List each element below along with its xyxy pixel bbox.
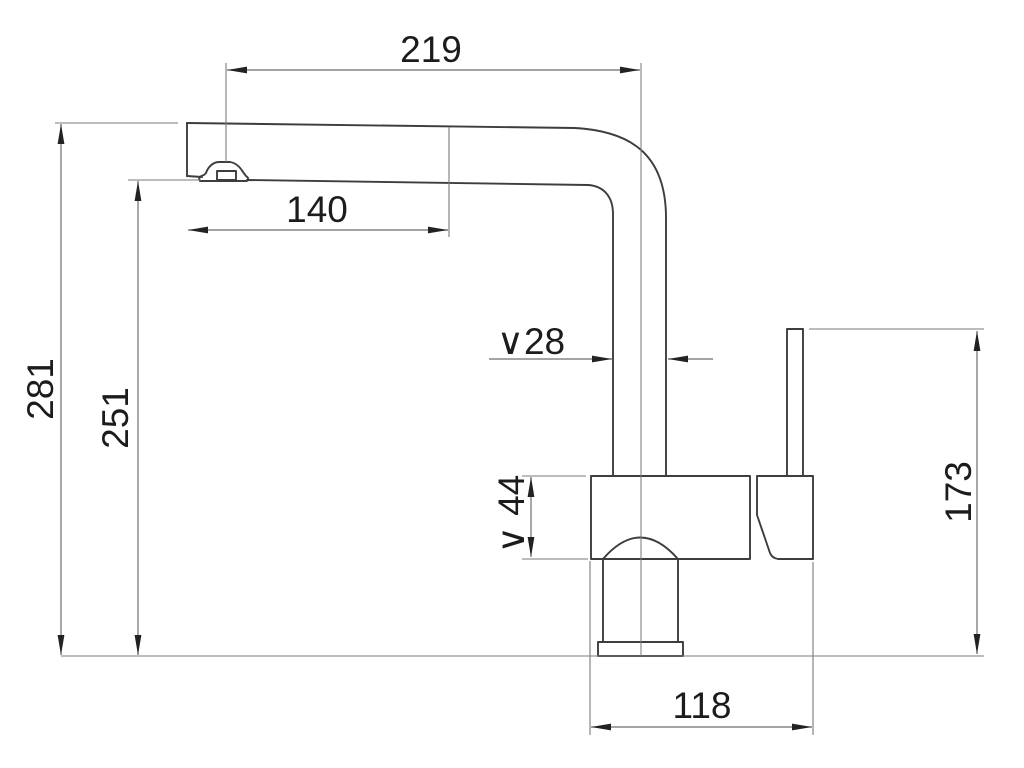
arrow-118-right — [792, 724, 812, 731]
dim-label-base-depth: 118 — [673, 685, 732, 726]
arrow-28-left — [592, 356, 612, 363]
arrow-173-bottom — [974, 634, 981, 654]
arrow-219-right — [620, 67, 640, 74]
faucet-dimension-drawing: 219 140 281 251 ∨28 ∨ 44 173 118 — [0, 0, 1024, 768]
dim-label-overall-height: 281 — [20, 358, 61, 420]
arrow-219-left — [227, 67, 247, 74]
dim-label-lever-height: 173 — [938, 461, 979, 523]
dim-label-aerator-height: 251 — [95, 387, 136, 449]
arrow-118-left — [591, 724, 611, 731]
arrow-28-right — [668, 356, 688, 363]
arrow-140-left — [188, 227, 208, 234]
dimension-lines — [61, 70, 977, 727]
dim-label-spout-reach: 219 — [400, 29, 462, 70]
faucet-outline — [187, 123, 813, 656]
aerator-outlet — [217, 171, 236, 180]
arrow-281-bottom — [58, 635, 65, 655]
dim-label-body-diameter: ∨ 44 — [491, 475, 532, 554]
arrow-251-top — [135, 181, 142, 201]
spout-outer-edge — [187, 123, 666, 476]
arrow-281-top — [58, 124, 65, 144]
dimension-labels: 219 140 281 251 ∨28 ∨ 44 173 118 — [20, 29, 979, 726]
arrow-173-top — [974, 331, 981, 351]
faucet-drawing-canvas: 219 140 281 251 ∨28 ∨ 44 173 118 — [0, 0, 1024, 768]
dimension-arrows — [58, 67, 981, 731]
dim-label-pipe-diameter: ∨28 — [497, 321, 565, 362]
arrow-251-bottom — [135, 635, 142, 655]
arrow-140-right — [428, 227, 448, 234]
handle-base — [757, 476, 813, 559]
dim-label-spout-tip-offset: 140 — [286, 189, 348, 230]
extension-lines — [55, 63, 984, 735]
handle-lever — [787, 329, 803, 476]
